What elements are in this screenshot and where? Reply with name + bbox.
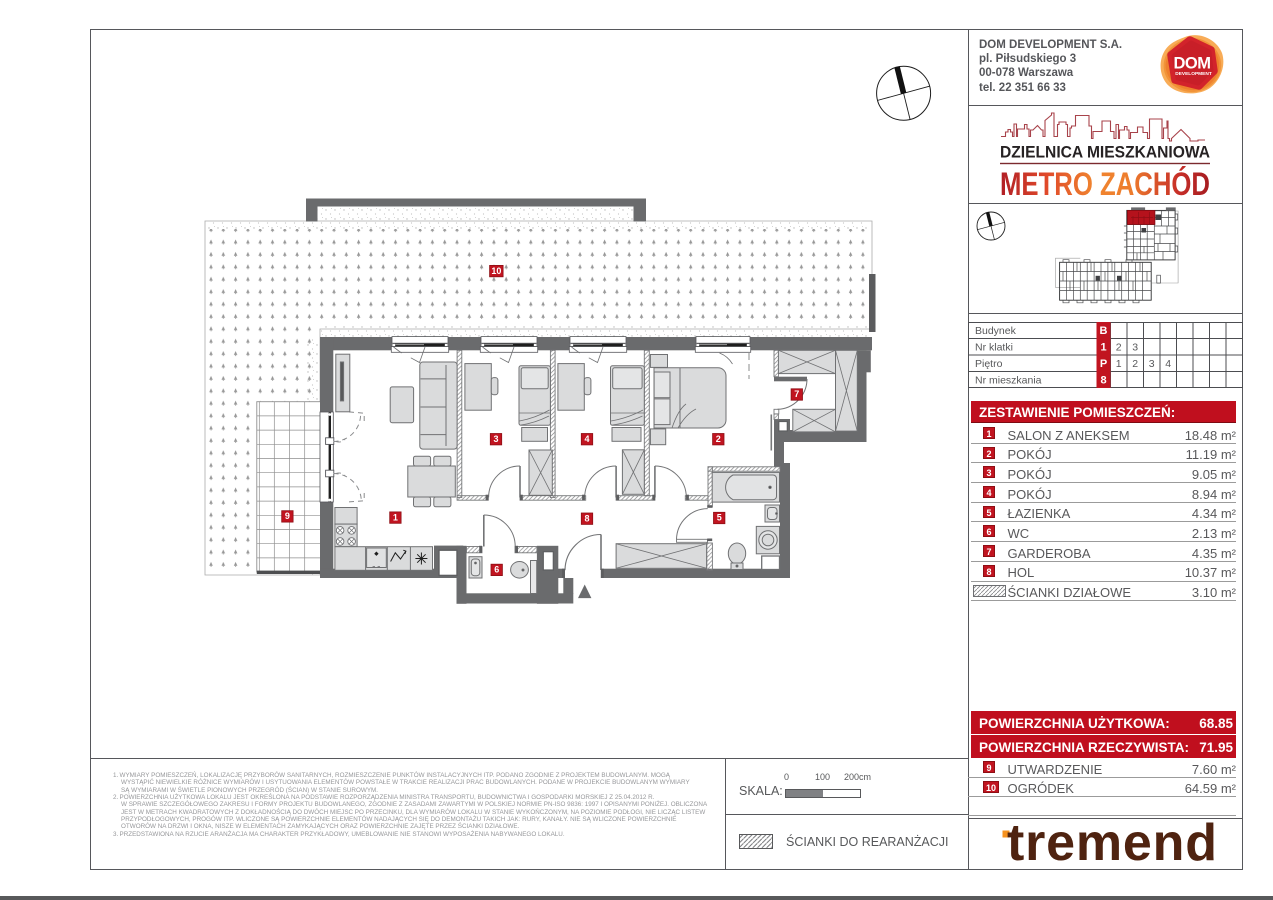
svg-text:tremend: tremend (1007, 818, 1218, 868)
svg-text:Nr klatki: Nr klatki (975, 342, 1013, 354)
svg-text:4: 4 (1165, 358, 1171, 370)
svg-text:1: 1 (1100, 342, 1106, 354)
svg-text:3: 3 (1149, 358, 1155, 370)
svg-text:METRO ZACHÓD: METRO ZACHÓD (1000, 166, 1210, 202)
svg-text:Piętro: Piętro (975, 358, 1003, 370)
svg-text:B: B (1100, 325, 1108, 337)
svg-text:Budynek: Budynek (975, 325, 1017, 337)
svg-text:1: 1 (1116, 358, 1122, 370)
svg-text:2: 2 (1116, 342, 1122, 354)
svg-text:3: 3 (1132, 342, 1138, 354)
svg-text:8: 8 (1100, 375, 1106, 387)
svg-text:DEVELOPMENT: DEVELOPMENT (1175, 71, 1212, 77)
svg-text:DOM: DOM (1174, 55, 1211, 73)
svg-text:Nr mieszkania: Nr mieszkania (975, 375, 1042, 387)
svg-text:P: P (1100, 358, 1107, 370)
svg-text:DZIELNICA MIESZKANIOWA: DZIELNICA MIESZKANIOWA (1000, 144, 1210, 162)
svg-text:2: 2 (1132, 358, 1138, 370)
